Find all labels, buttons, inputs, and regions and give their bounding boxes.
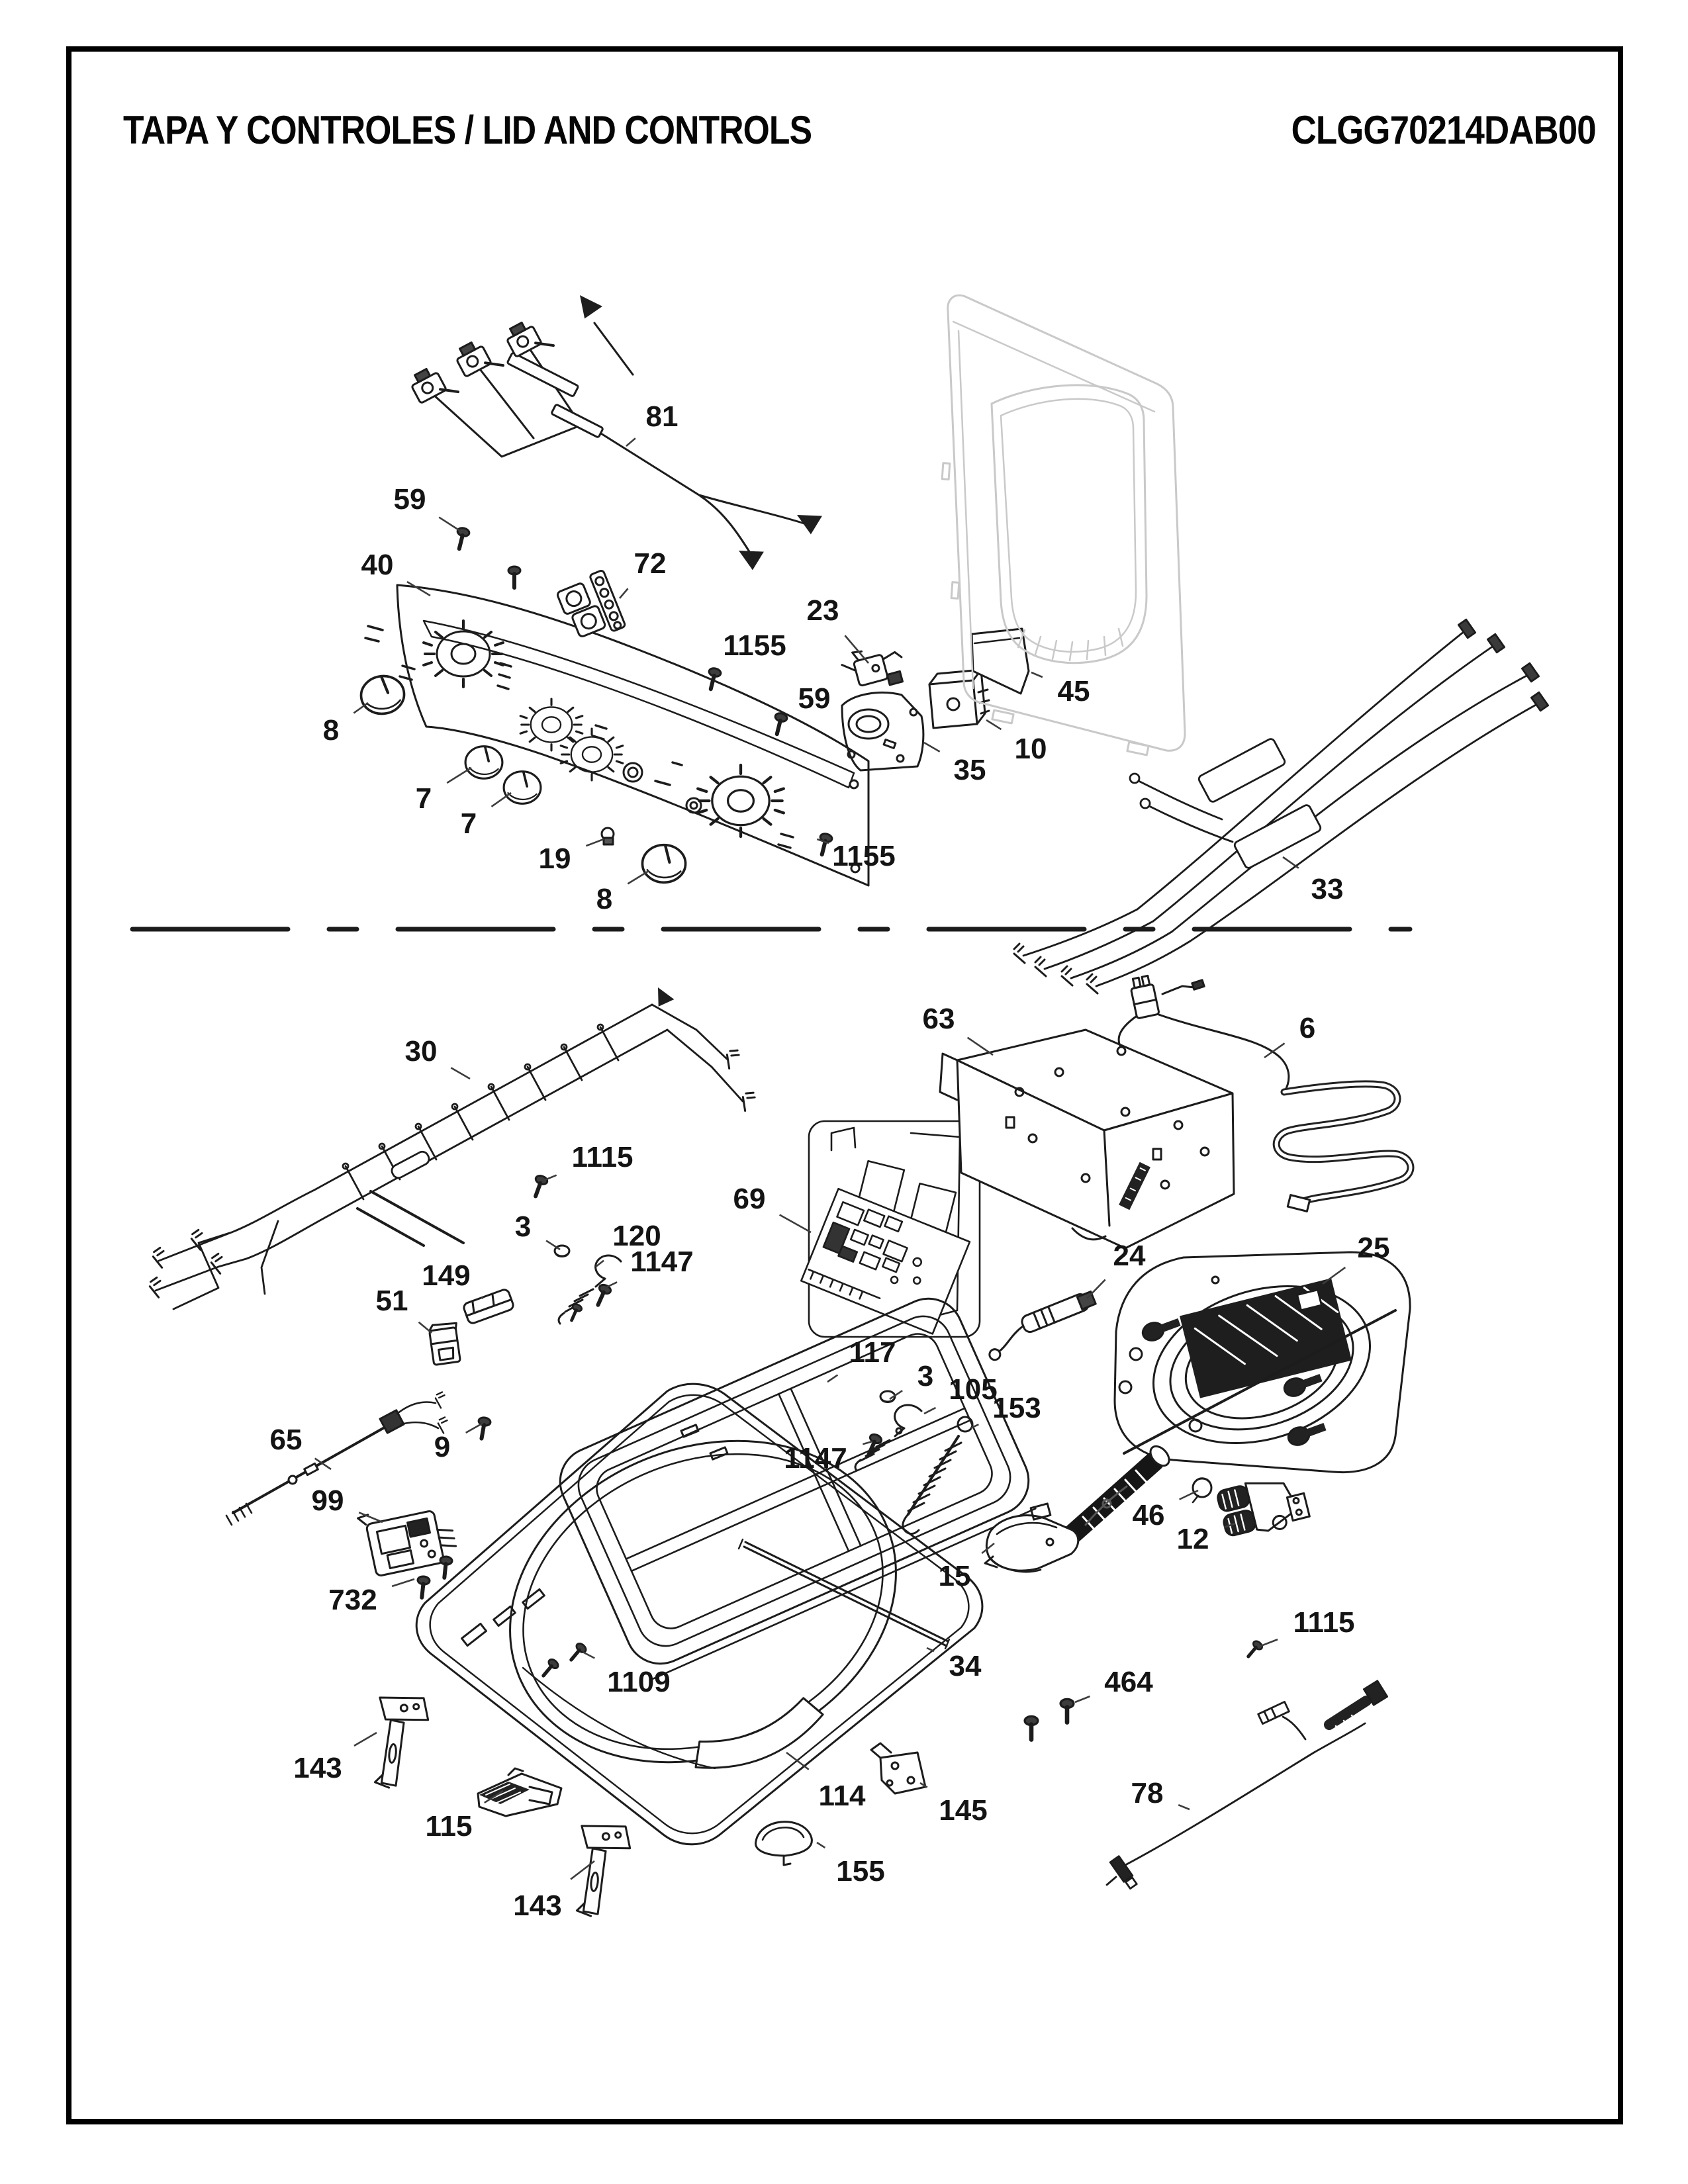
callout-35: 35 xyxy=(954,754,986,786)
callout-1147: 1147 xyxy=(784,1442,847,1475)
leader-line-51 xyxy=(419,1322,432,1333)
small-parts-center xyxy=(530,1174,621,1324)
screw-1155-lower xyxy=(816,833,833,856)
leader-line-69 xyxy=(780,1215,811,1232)
leader-line-732 xyxy=(392,1579,414,1586)
leader-line-45 xyxy=(1031,672,1043,677)
screw-464-b xyxy=(1025,1716,1038,1739)
part-12-water-valve xyxy=(1216,1470,1311,1542)
callout-12: 12 xyxy=(1177,1523,1209,1555)
callout-3: 3 xyxy=(917,1360,933,1392)
part-464-screws xyxy=(1025,1699,1074,1739)
leader-line-63 xyxy=(968,1038,993,1055)
parts-diagram-page: TAPA Y CONTROLES / LID AND CONTROLS CLGG… xyxy=(0,0,1688,2184)
part-25-console-panel xyxy=(1115,1252,1410,1473)
callout-732: 732 xyxy=(328,1584,377,1616)
callout-7: 7 xyxy=(461,807,477,840)
callout-153: 153 xyxy=(992,1392,1041,1424)
callout-114: 114 xyxy=(819,1780,867,1812)
callout-72: 72 xyxy=(634,547,667,580)
callout-69: 69 xyxy=(733,1183,766,1215)
leader-line-7 xyxy=(491,793,511,807)
callout-105: 105 xyxy=(949,1373,997,1406)
callout-149: 149 xyxy=(422,1259,470,1292)
callout-34: 34 xyxy=(949,1650,982,1682)
screw-1109-b xyxy=(539,1658,560,1679)
part-33-wire-harness xyxy=(1014,619,1548,993)
screw-464-a xyxy=(1060,1699,1074,1722)
leader-line-33 xyxy=(1283,857,1299,868)
leader-line-1147 xyxy=(863,1441,872,1444)
leader-line-1115 xyxy=(1259,1639,1278,1647)
part-72-switch-assembly xyxy=(555,570,626,646)
callout-8: 8 xyxy=(596,883,612,915)
callout-155: 155 xyxy=(836,1855,884,1888)
callout-464: 464 xyxy=(1104,1666,1153,1698)
leader-line-81 xyxy=(626,438,635,446)
part-81-wire-harness xyxy=(408,295,826,572)
callout-46: 46 xyxy=(1133,1499,1165,1531)
screw-panel xyxy=(508,567,520,588)
callout-145: 145 xyxy=(939,1794,987,1827)
callout-6: 6 xyxy=(1299,1012,1315,1044)
callout-59: 59 xyxy=(394,483,426,516)
screw-732-b xyxy=(438,1556,452,1578)
callout-40: 40 xyxy=(361,549,394,581)
screw-1115-right xyxy=(1244,1639,1264,1660)
callout-24: 24 xyxy=(1113,1240,1146,1272)
leader-line-30 xyxy=(451,1068,470,1079)
callout-143: 143 xyxy=(293,1752,342,1784)
leader-line-72 xyxy=(620,588,628,598)
leader-line-25 xyxy=(1323,1267,1345,1284)
leader-line-117 xyxy=(827,1375,837,1382)
part-35-mounting-plate xyxy=(842,693,923,770)
callout-10: 10 xyxy=(1015,733,1047,765)
callout-33: 33 xyxy=(1311,873,1344,905)
callout-59: 59 xyxy=(798,682,831,715)
callout-1155: 1155 xyxy=(723,629,786,662)
screw-59-right xyxy=(771,712,788,735)
leader-line-78 xyxy=(1178,1805,1190,1809)
callout-51: 51 xyxy=(376,1285,408,1317)
part-69-control-board xyxy=(801,1121,980,1337)
screw-732-a xyxy=(416,1576,430,1598)
leader-line-9 xyxy=(466,1423,483,1433)
screw-1115-left xyxy=(530,1174,549,1198)
part-51-clip xyxy=(428,1322,461,1365)
leader-line-6 xyxy=(1264,1043,1285,1058)
knob-8-right xyxy=(642,845,685,883)
callout-3: 3 xyxy=(515,1210,531,1243)
leader-line-19 xyxy=(586,839,604,846)
part-46-clamp xyxy=(1193,1479,1211,1502)
callout-15: 15 xyxy=(939,1560,971,1592)
knob-7-a xyxy=(465,747,502,779)
screw-59-left xyxy=(453,527,470,550)
callout-143: 143 xyxy=(513,1889,561,1922)
callout-1115: 1115 xyxy=(1293,1606,1354,1639)
callout-1155: 1155 xyxy=(832,840,895,872)
leader-line-7 xyxy=(447,768,471,783)
part-23-latch xyxy=(839,641,908,696)
part-115-damper xyxy=(478,1768,561,1816)
leader-line-24 xyxy=(1087,1279,1105,1298)
callout-81: 81 xyxy=(646,400,679,433)
knobs-8-7 xyxy=(359,673,686,882)
screw-9 xyxy=(476,1417,491,1440)
callout-63: 63 xyxy=(923,1003,955,1035)
callout-1115: 1115 xyxy=(571,1141,633,1173)
callout-8: 8 xyxy=(323,714,339,747)
part-155-cap xyxy=(755,1822,812,1865)
part-99-lid-lock xyxy=(357,1498,459,1578)
leader-line-105 xyxy=(924,1408,935,1414)
leader-line-1109 xyxy=(583,1652,594,1658)
callout-117: 117 xyxy=(849,1336,896,1369)
callout-1147: 1147 xyxy=(630,1246,693,1278)
callout-45: 45 xyxy=(1058,675,1090,707)
knob-8-left xyxy=(359,673,406,716)
leader-line-35 xyxy=(924,743,940,752)
leader-line-8 xyxy=(628,871,649,884)
callout-25: 25 xyxy=(1358,1232,1390,1264)
leader-line-3 xyxy=(546,1241,560,1250)
part-63-bracket xyxy=(940,1030,1234,1248)
part-24-sensor xyxy=(981,1290,1102,1361)
callout-23: 23 xyxy=(807,594,839,627)
part-105-rod xyxy=(855,1405,921,1471)
part-10-timer xyxy=(929,670,989,728)
callout-19: 19 xyxy=(539,842,571,875)
part-45-cover xyxy=(972,629,1029,694)
knob-7-b xyxy=(504,772,541,804)
callout-9: 9 xyxy=(434,1431,450,1463)
callout-1109: 1109 xyxy=(607,1666,670,1698)
callout-115: 115 xyxy=(426,1810,473,1843)
exploded-diagram: 8159407223115559451035877198115533306361… xyxy=(0,0,1688,2184)
leader-line-149 xyxy=(481,1297,483,1298)
part-19-stud xyxy=(602,828,614,844)
leader-line-155 xyxy=(817,1843,825,1848)
part-145-hinge xyxy=(871,1743,925,1794)
callout-7: 7 xyxy=(416,782,432,815)
callout-30: 30 xyxy=(405,1035,438,1068)
part-143-hinge-left xyxy=(371,1694,430,1791)
callout-78: 78 xyxy=(1131,1777,1164,1809)
callout-65: 65 xyxy=(270,1424,303,1456)
callout-99: 99 xyxy=(312,1484,344,1517)
leader-line-143 xyxy=(354,1733,377,1746)
part-149-slide xyxy=(463,1289,515,1325)
leader-line-59 xyxy=(439,518,462,532)
leader-line-464 xyxy=(1075,1696,1090,1702)
